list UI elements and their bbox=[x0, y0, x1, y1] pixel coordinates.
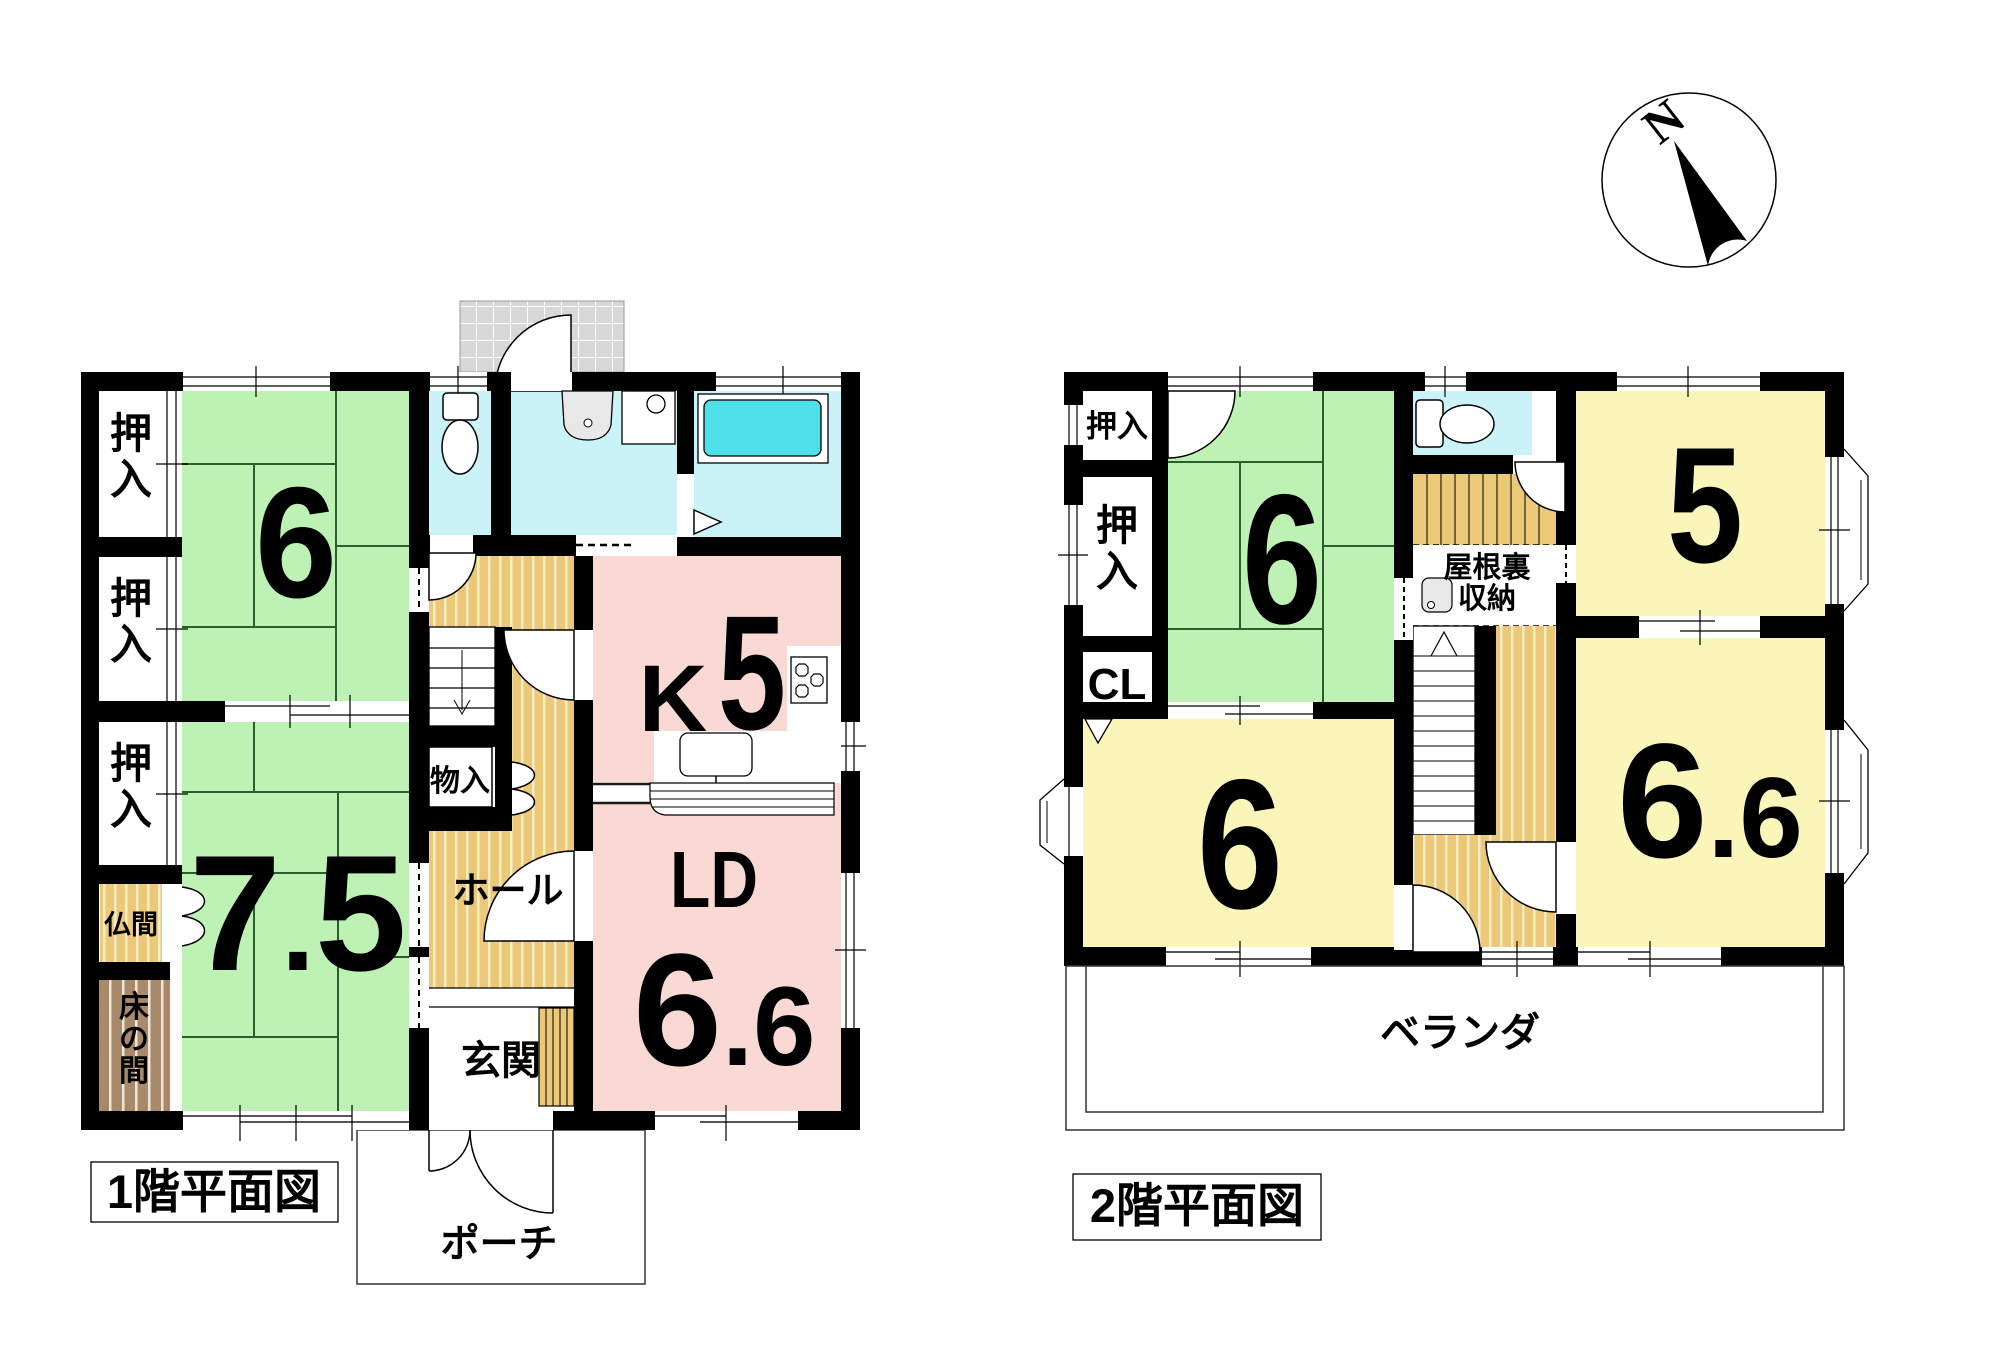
svg-text:押入: 押入 bbox=[110, 575, 152, 668]
svg-text:玄関: 玄関 bbox=[461, 1039, 541, 1083]
svg-text:K: K bbox=[639, 646, 708, 752]
svg-text:ベランダ: ベランダ bbox=[1380, 1011, 1540, 1055]
svg-text:6: 6 bbox=[1242, 457, 1322, 663]
svg-text:5: 5 bbox=[718, 581, 786, 764]
svg-text:6: 6 bbox=[1197, 742, 1283, 948]
svg-text:物入: 物入 bbox=[430, 765, 490, 798]
svg-text:1階平面図: 1階平面図 bbox=[107, 1165, 321, 1218]
svg-text:押入: 押入 bbox=[110, 410, 152, 503]
svg-text:5: 5 bbox=[1667, 413, 1743, 597]
svg-text:ポーチ: ポーチ bbox=[440, 1223, 557, 1266]
svg-text:床の間: 床の間 bbox=[119, 991, 149, 1088]
svg-text:CL: CL bbox=[1088, 660, 1147, 709]
svg-text:6: 6 bbox=[255, 455, 337, 631]
svg-text:2階平面図: 2階平面図 bbox=[1090, 1179, 1304, 1232]
svg-text:仏間: 仏間 bbox=[104, 910, 158, 940]
svg-text:押入: 押入 bbox=[1096, 502, 1138, 595]
svg-text:ホール: ホール bbox=[453, 870, 564, 911]
svg-text:押入: 押入 bbox=[1086, 409, 1148, 444]
svg-text:押入: 押入 bbox=[110, 740, 152, 833]
svg-text:LD: LD bbox=[670, 835, 758, 924]
